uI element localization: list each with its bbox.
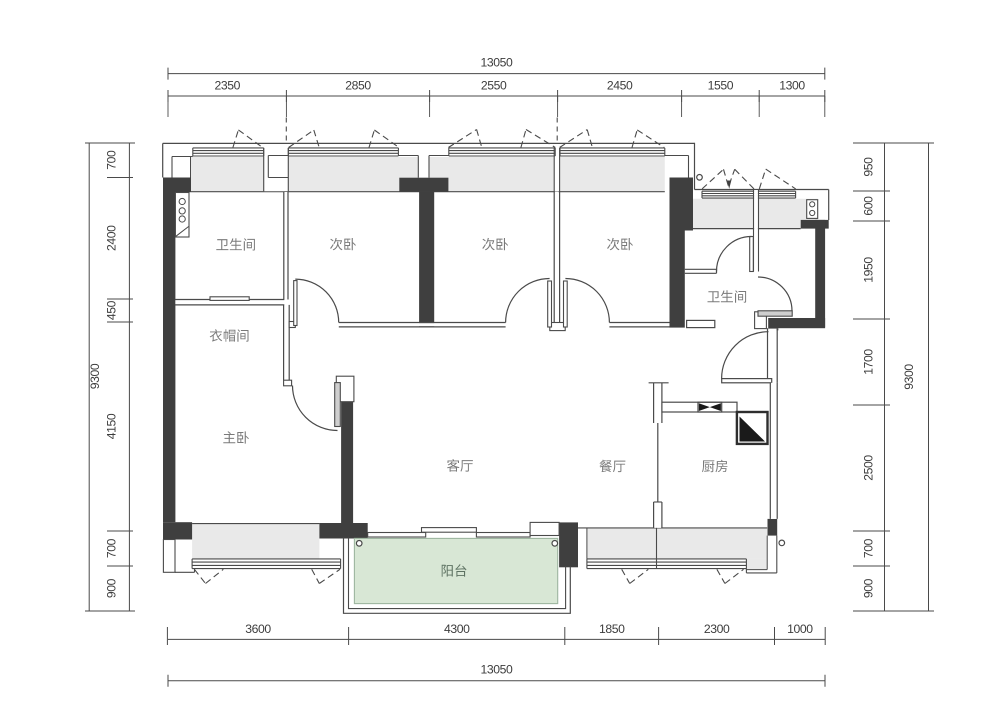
svg-text:2450: 2450 xyxy=(607,79,633,93)
svg-text:2500: 2500 xyxy=(862,455,876,481)
svg-text:600: 600 xyxy=(862,196,876,216)
svg-text:950: 950 xyxy=(862,157,876,177)
svg-text:1950: 1950 xyxy=(862,257,876,283)
svg-text:13050: 13050 xyxy=(480,56,513,70)
svg-text:2850: 2850 xyxy=(345,79,371,93)
svg-text:4300: 4300 xyxy=(444,622,470,636)
svg-text:2350: 2350 xyxy=(214,79,240,93)
svg-text:1300: 1300 xyxy=(779,79,805,93)
svg-text:700: 700 xyxy=(105,150,119,170)
svg-text:13050: 13050 xyxy=(480,663,513,677)
svg-text:3600: 3600 xyxy=(245,622,271,636)
svg-text:2400: 2400 xyxy=(105,225,119,251)
svg-text:1000: 1000 xyxy=(787,622,813,636)
svg-text:4150: 4150 xyxy=(105,413,119,439)
svg-text:1850: 1850 xyxy=(599,622,625,636)
svg-text:2550: 2550 xyxy=(481,79,507,93)
svg-text:900: 900 xyxy=(105,578,119,598)
svg-text:2300: 2300 xyxy=(704,622,730,636)
svg-text:9300: 9300 xyxy=(902,364,916,390)
svg-text:1550: 1550 xyxy=(708,79,734,93)
svg-text:1700: 1700 xyxy=(862,349,876,375)
svg-text:9300: 9300 xyxy=(88,363,102,389)
svg-text:900: 900 xyxy=(862,578,876,598)
svg-text:700: 700 xyxy=(862,538,876,558)
svg-text:700: 700 xyxy=(105,538,119,558)
svg-text:450: 450 xyxy=(105,300,119,320)
